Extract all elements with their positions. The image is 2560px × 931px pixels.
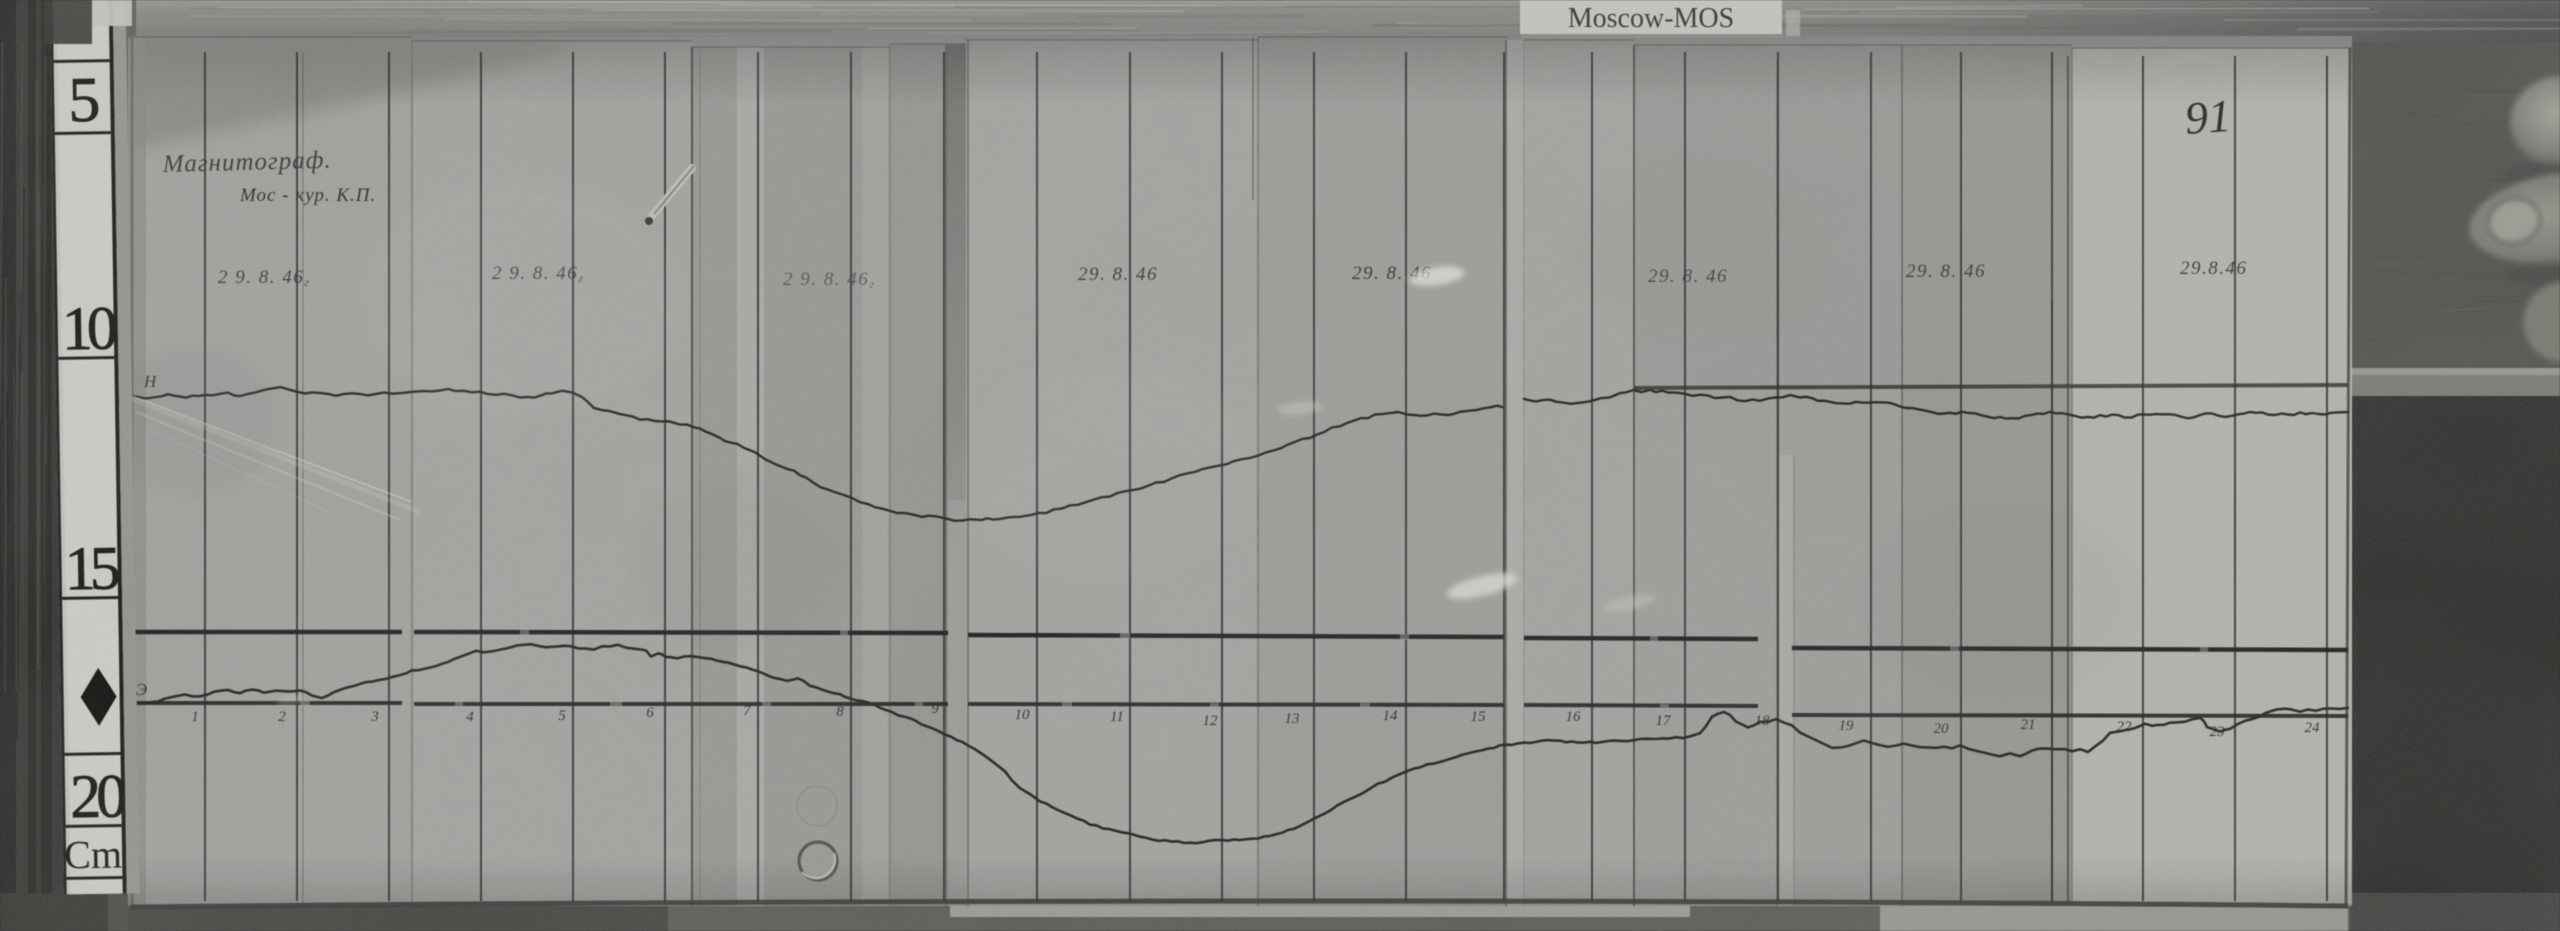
svg-text:6: 6 [646,705,654,721]
svg-text:14: 14 [1383,708,1399,724]
svg-text:2: 2 [278,709,286,725]
svg-text:8: 8 [836,704,844,720]
svg-text:16: 16 [1566,709,1582,725]
svg-text:13: 13 [1285,711,1300,727]
svg-text:10: 10 [1015,707,1031,723]
svg-text:21: 21 [2021,717,2036,733]
svg-text:24: 24 [2305,720,2321,736]
svg-text:15: 15 [1471,709,1487,725]
svg-text:5: 5 [558,708,566,724]
svg-text:29. 8. 46: 29. 8. 46 [1078,264,1158,285]
svg-text:19: 19 [1839,718,1855,734]
svg-text:Мос - кур. К.П.: Мос - кур. К.П. [239,185,376,206]
svg-text:3: 3 [370,709,379,725]
svg-text:Магнитограф.: Магнитограф. [161,147,332,178]
svg-text:5: 5 [68,64,101,135]
svg-text:29.8.46: 29.8.46 [2180,258,2248,279]
svg-text:29. 8. 46: 29. 8. 46 [1906,261,1986,282]
svg-text:10: 10 [61,295,116,364]
svg-text:Э: Э [136,680,147,699]
svg-text:91: 91 [2183,90,2232,144]
svg-text:2 9. 8. 46г: 2 9. 8. 46г [783,269,875,291]
svg-text:4: 4 [466,709,474,725]
svg-text:11: 11 [1110,709,1124,725]
svg-text:Moscow-MOS: Moscow-MOS [1568,3,1734,34]
svg-text:20: 20 [70,762,126,831]
svg-text:Cm: Cm [64,831,122,877]
svg-text:12: 12 [1203,713,1219,729]
svg-text:17: 17 [1656,713,1673,729]
svg-text:1: 1 [191,709,199,725]
svg-text:9: 9 [931,701,939,717]
svg-text:15: 15 [64,535,119,604]
svg-text:20: 20 [1934,721,1950,737]
svg-text:2 9. 8. 46г: 2 9. 8. 46г [218,267,310,289]
